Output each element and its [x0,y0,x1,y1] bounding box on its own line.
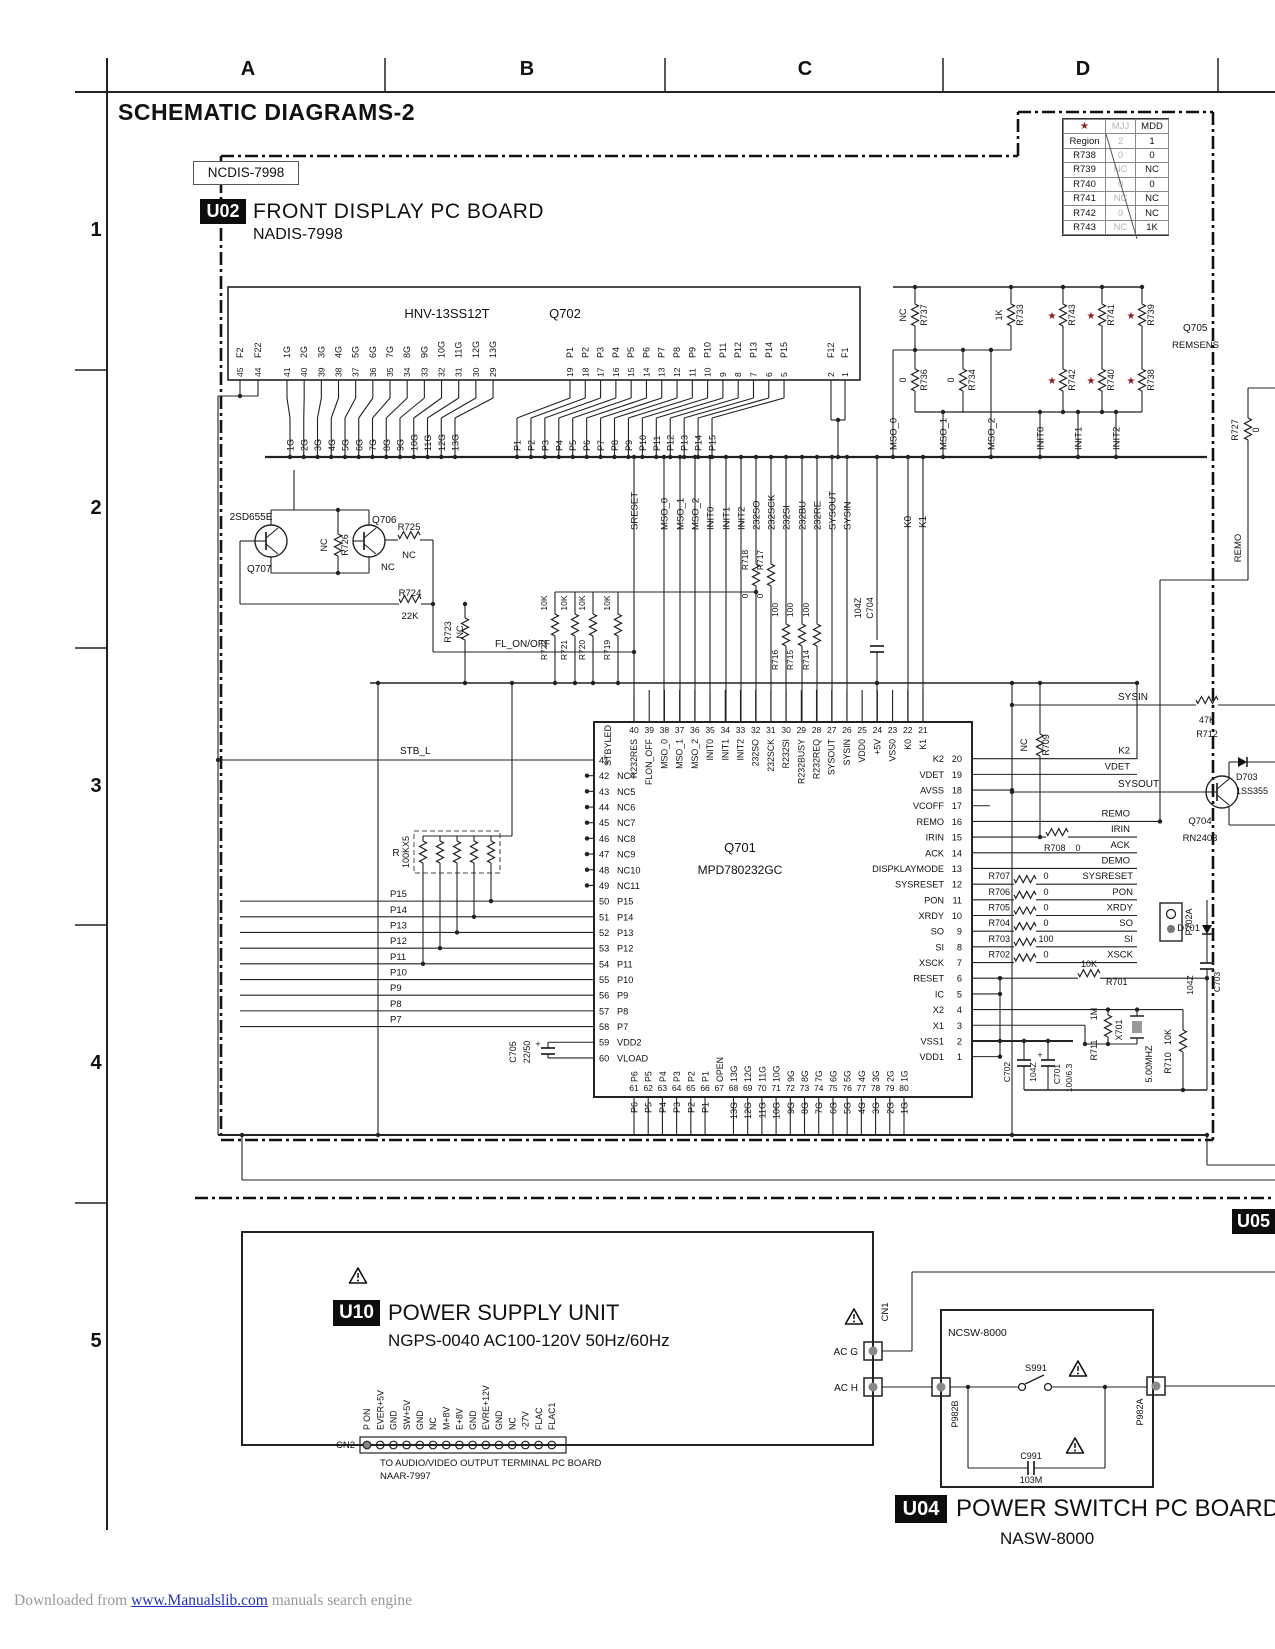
schematic-label: C701 [1052,1064,1062,1085]
schematic-label: R719 [602,640,612,661]
ac-h-label: AC H [834,1383,858,1394]
ic-pin-number: 22 [903,725,913,735]
bank-signal: INIT2 [1112,427,1123,450]
net-label: K2 [1118,746,1130,757]
ic-pin-name: P5 [644,1071,654,1082]
schematic-label: NC [455,625,465,638]
junction-dot [463,681,467,685]
resistor [799,624,806,646]
junction-dot [891,455,895,459]
bus-tag: 1G [899,1102,909,1114]
connector-pin-number: 34 [402,367,412,377]
connector-pin-name: P15 [779,342,789,358]
grid-col-C: C [785,58,825,81]
bus-tag: 10G [409,434,419,451]
bus-tag: P8 [610,440,620,451]
ic-pin-name: NC8 [617,834,635,844]
connector-pin-number: 32 [437,367,447,377]
ic-pin-name: FLON_OFF [644,738,654,785]
board-code-ncsw: NCSW-8000 [948,1327,1007,1339]
resistor [454,841,461,863]
junction-dot [472,915,476,919]
junction-dot [1158,819,1162,823]
connector-pin-number: 44 [253,367,263,377]
connector-pin-name: 2G [299,346,309,358]
junction-dot [438,946,442,950]
resistor-value: 1K [994,309,1004,320]
connector-pin [1167,910,1176,919]
cn1-label: CN1 [880,1302,891,1321]
junction-dot [989,455,993,459]
junction-dot [240,1133,244,1137]
cn2-pin-label: E+8V [455,1408,465,1430]
ic-pin-number: 64 [672,1083,682,1093]
ic-pin-name: SYSOUT [827,738,837,775]
bus-tag: P10 [638,435,648,451]
connector-pin-number: 29 [488,367,498,377]
connector-pin-number: 15 [626,367,636,377]
ic-pin-name: 7G [814,1070,824,1082]
ic-pin-name: X1 [933,1021,944,1031]
ic-pin-number: 25 [857,725,867,735]
junction-dot [1061,410,1065,414]
s991-label: S991 [1025,1363,1047,1374]
net-label: SI [1124,934,1133,945]
ic-pin-number: 43 [599,787,609,797]
signal-column-label: SYSOUT [828,491,839,530]
bus-tag: 5G [341,439,351,451]
bus-tag: P9 [624,440,634,451]
schematic-label: 0 [1043,871,1048,881]
net-label: P11 [390,952,406,963]
connector-pin-name: P11 [718,343,728,358]
schematic-label: R723 [443,621,453,643]
manualslib-link[interactable]: www.Manualslib.com [131,1592,268,1609]
schematic-label: 103M [1020,1475,1043,1485]
connector-pin-name: 11G [454,342,464,358]
schematic-label: R707 [988,871,1010,881]
ic-pin-name: XRDY [918,911,944,921]
resistor [1008,304,1015,326]
ic-pin-name: 4G [857,1070,867,1082]
schematic-label: R709 [1041,734,1051,756]
bus-tag: P2 [526,440,536,451]
ic-pin-number: 74 [814,1083,824,1093]
connector-pin-name: P4 [611,347,621,358]
bus-tag: 3G [313,439,323,451]
ic-pin-number: 19 [952,770,962,780]
ic-pin-number: 53 [599,944,609,954]
schematic-label: R727 [1230,419,1240,441]
junction-dot [238,394,242,398]
u02-badge: U02 [200,199,246,224]
resistor-ref: R734 [967,369,977,391]
wire [318,398,322,418]
connector-pin-number: 1 [840,372,850,377]
junction-dot [1010,703,1014,707]
terminal [869,1347,878,1356]
ic-pin-number: 1 [957,1052,962,1062]
schematic-label: RN2403 [1183,833,1218,844]
net-stb-l: STB_L [400,746,431,757]
schematic-label: 10K [559,595,569,610]
ic-pin-name: OPEN [715,1057,725,1082]
resistor [1139,369,1146,391]
ic-pin-number: 57 [599,1006,609,1016]
resistor [1078,970,1100,977]
resistor-value: NC [898,308,908,321]
net-remo: REMO [1233,534,1244,563]
ic-ref: Q701 [724,840,756,855]
bus-tag: 11G [423,435,433,451]
resistor-ref: R742 [1067,369,1077,391]
schematic-label: NC [319,538,329,551]
junction-dot [1106,1042,1110,1046]
junction-dot [421,962,425,966]
bus-tag: P3 [540,440,550,451]
page-title: SCHEMATIC DIAGRAMS-2 [118,99,415,126]
grid-col-B: B [507,58,547,81]
region-star: ★ [1087,311,1096,322]
q707-part: 2SD655E [230,512,273,523]
resistor [1196,697,1218,704]
ic-pin-number: 13 [952,864,962,874]
ic-pin-name: 232SCK [766,739,776,772]
wire [559,398,616,418]
junction-dot [431,602,435,606]
connector-pin-number: 12 [672,367,682,377]
bus-tag: 9G [396,439,406,451]
ic-pin-number: 7 [957,958,962,968]
ic-pin-number: 32 [751,725,761,735]
ic-pin-number: 20 [952,754,962,764]
bus-tag: P4 [554,440,564,451]
schematic-label: 0 [1043,918,1048,928]
ic-pin-name: ACK [925,848,945,858]
ic-pin-name: 3G [871,1070,881,1082]
u02-title: FRONT DISPLAY PC BOARD [253,200,544,224]
bus-tag: P1 [513,440,523,451]
schematic-label: 1SS355 [1236,786,1268,796]
ic-pin-number: 67 [715,1083,725,1093]
u04-badge: U04 [895,1495,947,1523]
wire [364,544,376,554]
signal-column-label: SRESET [630,492,641,530]
ic-pin-number: 47 [599,850,609,860]
ic-pin-number: 45 [599,818,609,828]
ic-pin-number: 15 [952,833,962,843]
bus-tag: P7 [596,440,606,451]
junction-dot [906,455,910,459]
schematic-label: K0 [903,515,914,528]
junction-dot [585,789,589,793]
wire [331,398,338,418]
resistor [1060,369,1067,391]
schematic-label: C991 [1020,1451,1042,1461]
footer-prefix: Downloaded from [14,1592,131,1609]
grid-row-3: 3 [84,775,108,798]
bus-tag: 13G [729,1102,739,1119]
resistor [572,614,579,636]
net-label: XSCK [1107,950,1134,961]
schematic-label: 0 [1043,950,1048,960]
wire [455,398,493,418]
resistor [1014,876,1036,883]
connector-pin-name: P1 [565,347,575,358]
net-label: XRDY [1107,903,1134,914]
net-label: VDET [1105,761,1131,772]
cn2-pin-label: NC [507,1417,517,1430]
u05-badge: U05 [1232,1209,1275,1234]
schematic-label: 100 [1038,934,1053,944]
footer-suffix: manuals search engine [268,1592,412,1609]
connector-pin-number: 40 [299,367,309,377]
schematic-label: D703 [1236,772,1258,782]
connector-pin-number: 10 [703,367,713,377]
resistor [768,564,775,586]
bus-tag: P14 [694,435,704,451]
u10-subtitle: NGPS-0040 AC100-120V 50Hz/60Hz [388,1331,670,1351]
junction-dot [875,455,879,459]
connector-pin-name: 3G [316,346,326,358]
ic-pin-name: P8 [617,1006,628,1016]
ic-pin-name: R232REQ [812,739,822,779]
connector-pin-name: 8G [402,346,412,358]
junction-dot [336,571,340,575]
ic-pin-name: VLOAD [617,1053,649,1063]
ic-pin-name: P2 [686,1071,696,1082]
bus-tag: 12G [437,434,447,451]
schematic-label: 10K [1081,959,1097,969]
resistor-ref: R743 [1067,304,1077,326]
net-label: P10 [390,968,407,979]
net-label: ACK [1110,840,1130,851]
wire [670,398,738,418]
bus-tag: 10G [772,1102,782,1119]
ic-pin-name: VDD0 [857,739,867,763]
wire [266,528,278,538]
bus-tag: P2 [686,1102,696,1113]
ic-pin-name: 10G [772,1065,782,1082]
cn2-label: CN2 [336,1440,355,1451]
ic-pin-name: 13G [729,1065,739,1082]
ic-pin-number: 30 [781,725,791,735]
bus-tag: 13G [451,434,461,451]
wire [266,544,278,554]
net-label: IRIN [1111,824,1130,835]
schematic-label: P702A [1184,908,1194,935]
junction-dot [585,883,589,887]
connector-pin-number: 30 [471,367,481,377]
connector-pin-number: 31 [454,367,464,377]
schematic-label: R722 [539,640,549,661]
schematic-label: Q707 [247,564,272,575]
region-star: ★ [1127,376,1136,387]
schematic-label: 0 [1251,427,1261,432]
ic-pin-number: 63 [658,1083,668,1093]
signal-column-label: 232SO [752,500,763,530]
ic-pin-name: P1 [701,1071,711,1082]
resistor [1014,938,1036,945]
bus-tag: P5 [568,440,578,451]
ic-pin-number: 54 [599,959,609,969]
ic-pin-number: 55 [599,975,609,985]
ic-pin-number: 29 [797,725,807,735]
junction-dot [1181,1088,1185,1092]
ic-pin-name: 6G [828,1070,838,1082]
junction-dot [216,758,220,762]
schematic-label: 0 [755,593,765,598]
terminal [869,1383,878,1392]
bus-tag: P5 [644,1102,654,1113]
wire [531,398,585,418]
u04-subtitle: NASW-8000 [1000,1529,1094,1549]
connector-pin-number: 39 [316,367,326,377]
ic-pin-name: MSO_0 [659,739,669,769]
bus-tag: 8G [382,439,392,451]
net-label: P12 [390,936,407,947]
ic-pin-number: 77 [857,1083,867,1093]
resistor [814,624,821,646]
schematic-label: R704 [988,918,1010,928]
ic-pin-name: P6 [630,1071,640,1082]
ic-pin-name: REMO [916,817,944,827]
connector-pin-name: P10 [703,342,713,358]
junction-dot [961,348,965,352]
ic-pin-number: 39 [644,725,654,735]
bus-tag: 6G [828,1102,838,1114]
bus-tag: 5G [843,1102,853,1114]
net-label: PON [1112,887,1133,898]
grid-row-4: 4 [84,1052,108,1075]
ic-pin-name: AVSS [920,786,944,796]
resistor [488,841,495,863]
ic-pin-name: SYSRESET [895,880,944,890]
resistor-ref: R738 [1146,369,1156,391]
grid-row-5: 5 [84,1330,108,1353]
schematic-label: K1 [918,515,929,528]
ic-pin-number: 60 [599,1053,609,1063]
connector-pin-number: 38 [334,367,344,377]
ic-pin-number: 75 [828,1083,838,1093]
ic-pin-number: 26 [842,725,852,735]
ic-pin-name: SYSIN [842,739,852,765]
ic-pin-number: 50 [599,897,609,907]
junction-dot [1010,790,1014,794]
grid-row-2: 2 [84,497,108,520]
junction-dot [455,930,459,934]
ic-pin-number: 12 [952,880,962,890]
junction-dot [913,348,917,352]
connector-pin-name: 4G [334,346,344,358]
junction-dot [1076,455,1080,459]
connector-pin-number: 16 [611,367,621,377]
bus-tag: 3G [871,1102,881,1114]
connector-pin-name: P13 [748,342,758,358]
schematic-label: 22K [402,611,420,622]
ic-pin-number: 14 [952,848,962,858]
resistor [1180,1030,1187,1052]
resistor [912,304,919,326]
bus-tag: P6 [582,440,592,451]
bus-tag: 4G [857,1102,867,1114]
junction-dot [585,852,589,856]
cn2-pin-label: EVRE+12V [481,1385,491,1430]
schematic-label: R717 [755,550,765,571]
ic-pin-number: 23 [888,725,898,735]
schematic-label: C705 [508,1041,518,1063]
bus-tag: P3 [672,1102,682,1113]
ic-pin-number: 78 [871,1083,881,1093]
schematic-label: 10K [602,595,612,610]
junction-dot [1100,410,1104,414]
junction-dot [1114,455,1118,459]
cn2-pin-label: M+8V [441,1407,451,1430]
bus-tag: 2G [299,439,309,451]
schematic-label: NC [1019,738,1029,751]
cn2-pin-label: SW+5V [402,1400,412,1430]
net-sysout: SYSOUT [1118,779,1159,790]
junction-dot [921,455,925,459]
resistor [552,614,559,636]
resistor [960,369,967,391]
schematic-label: R726 [340,534,350,556]
ic-pin-name: DISPKLAYMODE [872,864,944,874]
connector-pin-name: F2 [235,347,245,358]
cn2-note: NAAR-7997 [380,1471,431,1482]
ic-pin-name: VDD1 [919,1052,944,1062]
connector-pin-number: 37 [351,367,361,377]
schematic-label: R714 [801,650,811,671]
ic-pin-number: 38 [660,725,670,735]
cn2-pin-label: P ON [362,1409,372,1430]
ic-pin-number: 10 [952,911,962,921]
schematic-label: + [1037,1050,1042,1060]
ic-pin-number: 58 [599,1022,609,1032]
wire [414,398,442,418]
schematic-label: R706 [988,887,1010,897]
net-label: DEMO [1102,855,1131,866]
u10-badge: U10 [333,1300,380,1326]
ic-pin-number: 65 [686,1083,696,1093]
schematic-label: 10K [1163,1029,1173,1045]
junction-dot [1038,455,1042,459]
connector-pin-name: F12 [826,342,836,358]
ic-pin-name: +5V [872,739,882,755]
cn2-pin-label: EVER+5V [375,1390,385,1430]
cn2-pin-label: GND [494,1410,504,1430]
ic-pin-name: 5G [843,1070,853,1082]
connector-name: HNV-13SS12T [404,306,489,321]
connector-pin-name: 5G [351,346,361,358]
schematic-label: 100 [801,603,811,617]
ic-pin-number: 72 [786,1083,796,1093]
signal-column-label: SYSIN [843,501,854,530]
bus-tag: 1G [286,439,296,451]
signal-column-label: 232SI [782,505,793,530]
ic-pin-number: 76 [842,1083,852,1093]
net-label: P8 [390,999,402,1010]
connector-pin-name: F22 [253,342,263,358]
schematic-label: R710 [1163,1052,1173,1074]
schematic-label: 0 [1075,843,1080,853]
schematic-label: 100 [785,603,795,617]
ic-pin-name: NC9 [617,850,635,860]
net-label: P15 [390,889,407,900]
connector-pin-number: 19 [565,367,575,377]
resistor [1014,954,1036,961]
junction-dot [585,821,589,825]
